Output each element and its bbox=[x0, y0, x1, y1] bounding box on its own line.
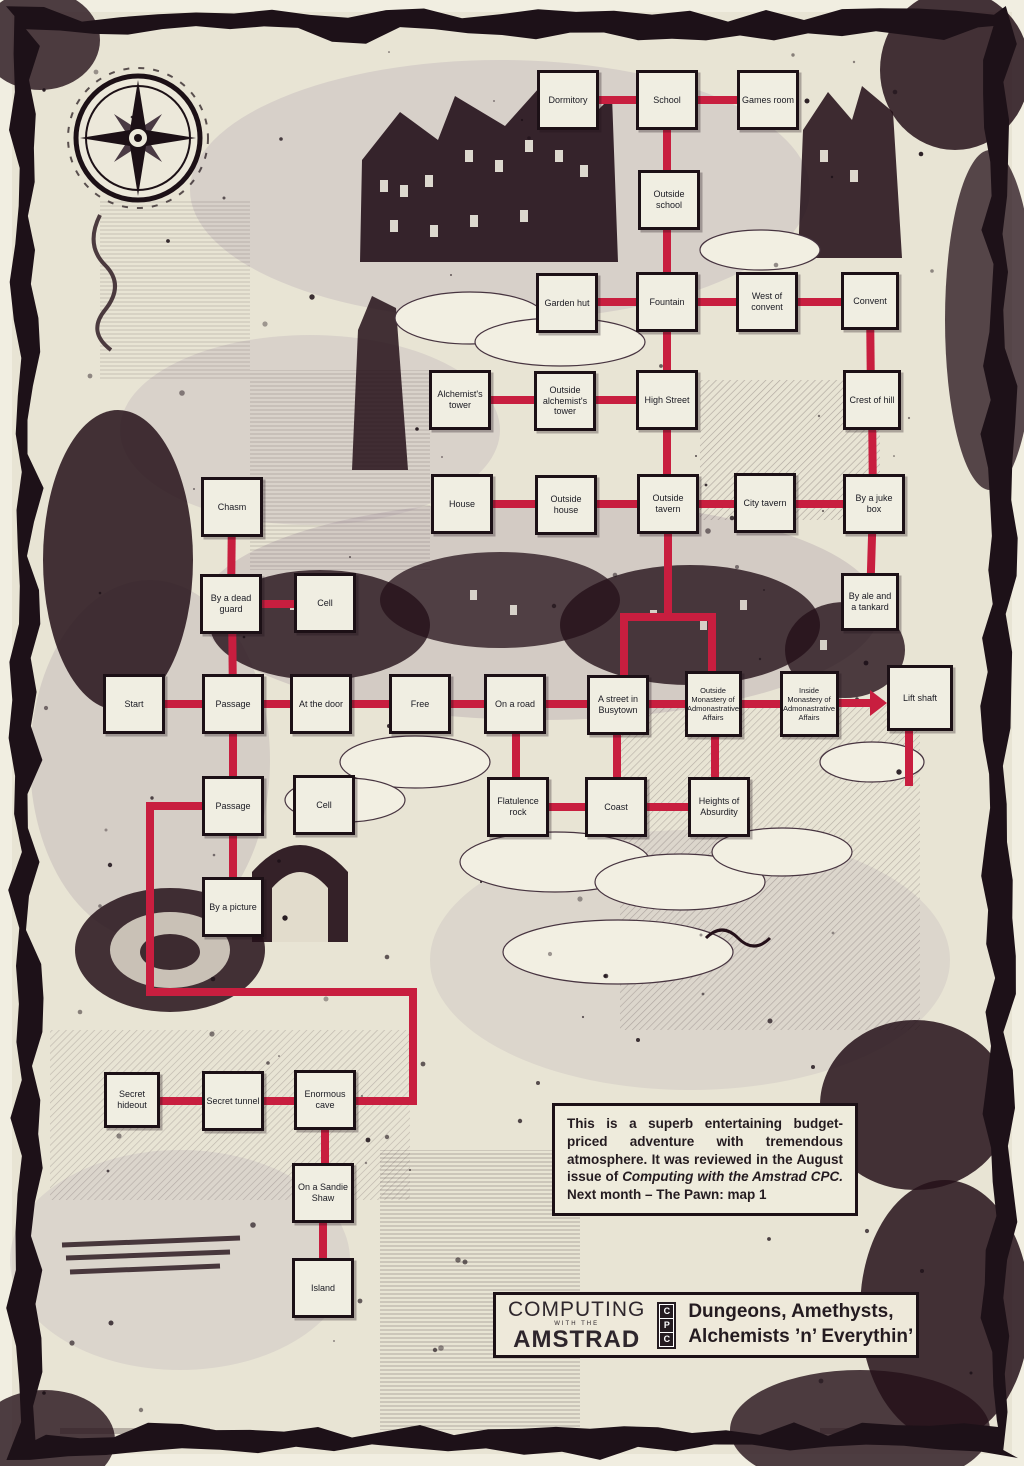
map-location-label: City tavern bbox=[743, 498, 786, 509]
map-location-label: By a dead guard bbox=[204, 593, 258, 615]
map-location-label: Flatulence rock bbox=[491, 796, 545, 818]
logo-amstrad: AMSTRAD bbox=[513, 1328, 640, 1352]
map-location-alchemists-tower: Alchemist's tower bbox=[429, 370, 491, 430]
map-location-island: Island bbox=[292, 1258, 354, 1318]
map-location-label: House bbox=[449, 499, 475, 510]
map-location-label: Cell bbox=[317, 598, 333, 609]
map-location-crest-of-hill: Crest of hill bbox=[843, 370, 901, 430]
map-location-label: On a Sandie Shaw bbox=[296, 1182, 350, 1204]
map-location-by-a-picture: By a picture bbox=[202, 877, 264, 937]
map-location-label: Start bbox=[124, 699, 143, 710]
map-location-school: School bbox=[636, 70, 698, 130]
map-location-label: Fountain bbox=[649, 297, 684, 308]
cpc-letter: C bbox=[660, 1333, 673, 1346]
map-location-a-street-in-busytown: A street in Busytown bbox=[587, 675, 649, 735]
cpc-letter: C bbox=[660, 1305, 673, 1318]
review-note-text-2: Next month – The Pawn: map 1 bbox=[567, 1187, 767, 1202]
map-location-label: Island bbox=[311, 1283, 335, 1294]
magazine-name: Computing with the Amstrad CPC. bbox=[622, 1169, 843, 1184]
map-location-by-a-juke-box: By a juke box bbox=[843, 474, 905, 534]
cpc-letter: P bbox=[660, 1319, 673, 1332]
game-title-line2: Alchemists ’n’ Everythin’ bbox=[688, 1325, 913, 1350]
map-location-label: Outside tavern bbox=[641, 493, 695, 515]
map-location-secret-hideout: Secret hideout bbox=[104, 1072, 160, 1128]
map-location-label: Heights of Absurdity bbox=[692, 796, 746, 818]
map-location-label: At the door bbox=[299, 699, 343, 710]
map-location-label: By a picture bbox=[209, 902, 257, 913]
map-location-inside-monastery: Inside Monastery of Admonastrative Affai… bbox=[780, 671, 839, 737]
logo-computing: COMPUTING bbox=[508, 1299, 645, 1320]
map-locations: DormitorySchoolGames roomOutside schoolG… bbox=[0, 0, 1024, 1466]
map-location-label: Cell bbox=[316, 800, 332, 811]
map-location-lift-shaft: Lift shaft bbox=[887, 665, 953, 731]
map-location-enormous-cave: Enormous cave bbox=[294, 1070, 356, 1130]
map-location-outside-house: Outside house bbox=[535, 475, 597, 535]
map-location-label: West of convent bbox=[740, 291, 794, 313]
map-location-cell-lower: Cell bbox=[293, 775, 355, 835]
map-location-label: A street in Busytown bbox=[591, 694, 645, 716]
map-location-heights-of-absurdity: Heights of Absurdity bbox=[688, 777, 750, 837]
map-location-by-ale-and-a-tankard: By ale and a tankard bbox=[841, 573, 899, 631]
map-location-label: School bbox=[653, 95, 681, 106]
map-location-label: Garden hut bbox=[544, 298, 589, 309]
map-location-label: Enormous cave bbox=[298, 1089, 352, 1111]
logo-strip: COMPUTING WITH THE AMSTRAD C P C Dungeon… bbox=[493, 1292, 919, 1358]
map-location-label: Crest of hill bbox=[849, 395, 894, 406]
map-location-on-a-sandie-shaw: On a Sandie Shaw bbox=[292, 1163, 354, 1223]
map-location-cell-upper: Cell bbox=[294, 573, 356, 633]
map-location-label: High Street bbox=[644, 395, 689, 406]
map-location-label: Free bbox=[411, 699, 430, 710]
map-location-convent: Convent bbox=[841, 272, 899, 330]
map-location-flatulence-rock: Flatulence rock bbox=[487, 777, 549, 837]
map-location-passage-upper: Passage bbox=[202, 674, 264, 734]
map-location-high-street: High Street bbox=[636, 370, 698, 430]
map-location-garden-hut: Garden hut bbox=[536, 273, 598, 333]
map-location-passage-lower: Passage bbox=[202, 776, 264, 836]
map-location-fountain: Fountain bbox=[636, 272, 698, 332]
map-location-label: Outside house bbox=[539, 494, 593, 516]
map-location-free: Free bbox=[389, 674, 451, 734]
map-location-label: Outside alchemist's tower bbox=[538, 385, 592, 417]
map-location-label: Alchemist's tower bbox=[433, 389, 487, 411]
map-location-label: Outside school bbox=[642, 189, 696, 211]
map-location-label: Inside Monastery of Admonastrative Affai… bbox=[783, 686, 835, 722]
cpc-badge: C P C bbox=[657, 1302, 676, 1349]
map-location-label: Games room bbox=[742, 95, 794, 106]
magazine-map-page: DormitorySchoolGames roomOutside schoolG… bbox=[0, 0, 1024, 1466]
map-location-label: Lift shaft bbox=[903, 693, 937, 704]
review-note: This is a superb entertaining budget-pri… bbox=[552, 1103, 858, 1216]
map-location-label: By ale and a tankard bbox=[845, 591, 895, 613]
map-location-label: Secret tunnel bbox=[206, 1096, 259, 1107]
map-location-label: Dormitory bbox=[548, 95, 587, 106]
map-location-games-room: Games room bbox=[737, 70, 799, 130]
map-location-label: Convent bbox=[853, 296, 887, 307]
map-location-label: Coast bbox=[604, 802, 628, 813]
map-location-outside-alchemists-tower: Outside alchemist's tower bbox=[534, 371, 596, 431]
map-location-start: Start bbox=[103, 674, 165, 734]
map-location-chasm: Chasm bbox=[201, 477, 263, 537]
map-location-house: House bbox=[431, 474, 493, 534]
game-title: Dungeons, Amethysts, Alchemists ’n’ Ever… bbox=[688, 1300, 913, 1349]
map-location-dormitory: Dormitory bbox=[537, 70, 599, 130]
map-location-label: Passage bbox=[215, 801, 250, 812]
map-location-west-of-convent: West of convent bbox=[736, 272, 798, 332]
map-location-coast: Coast bbox=[585, 777, 647, 837]
map-location-secret-tunnel: Secret tunnel bbox=[202, 1071, 264, 1131]
map-location-city-tavern: City tavern bbox=[734, 473, 796, 533]
map-location-outside-school: Outside school bbox=[638, 170, 700, 230]
map-location-label: Chasm bbox=[218, 502, 247, 513]
map-location-outside-tavern: Outside tavern bbox=[637, 474, 699, 534]
map-location-label: Passage bbox=[215, 699, 250, 710]
map-location-label: Outside Monastery of Admonastrative Affa… bbox=[687, 686, 739, 722]
map-location-by-a-dead-guard: By a dead guard bbox=[200, 574, 262, 634]
computing-with-the-amstrad-logo: COMPUTING WITH THE AMSTRAD bbox=[508, 1299, 645, 1352]
map-location-outside-monastery: Outside Monastery of Admonastrative Affa… bbox=[685, 671, 742, 737]
map-location-label: By a juke box bbox=[847, 493, 901, 515]
map-location-label: Secret hideout bbox=[108, 1089, 156, 1111]
map-location-at-the-door: At the door bbox=[290, 674, 352, 734]
map-location-on-a-road: On a road bbox=[484, 674, 546, 734]
game-title-line1: Dungeons, Amethysts, bbox=[688, 1300, 913, 1325]
map-location-label: On a road bbox=[495, 699, 535, 710]
